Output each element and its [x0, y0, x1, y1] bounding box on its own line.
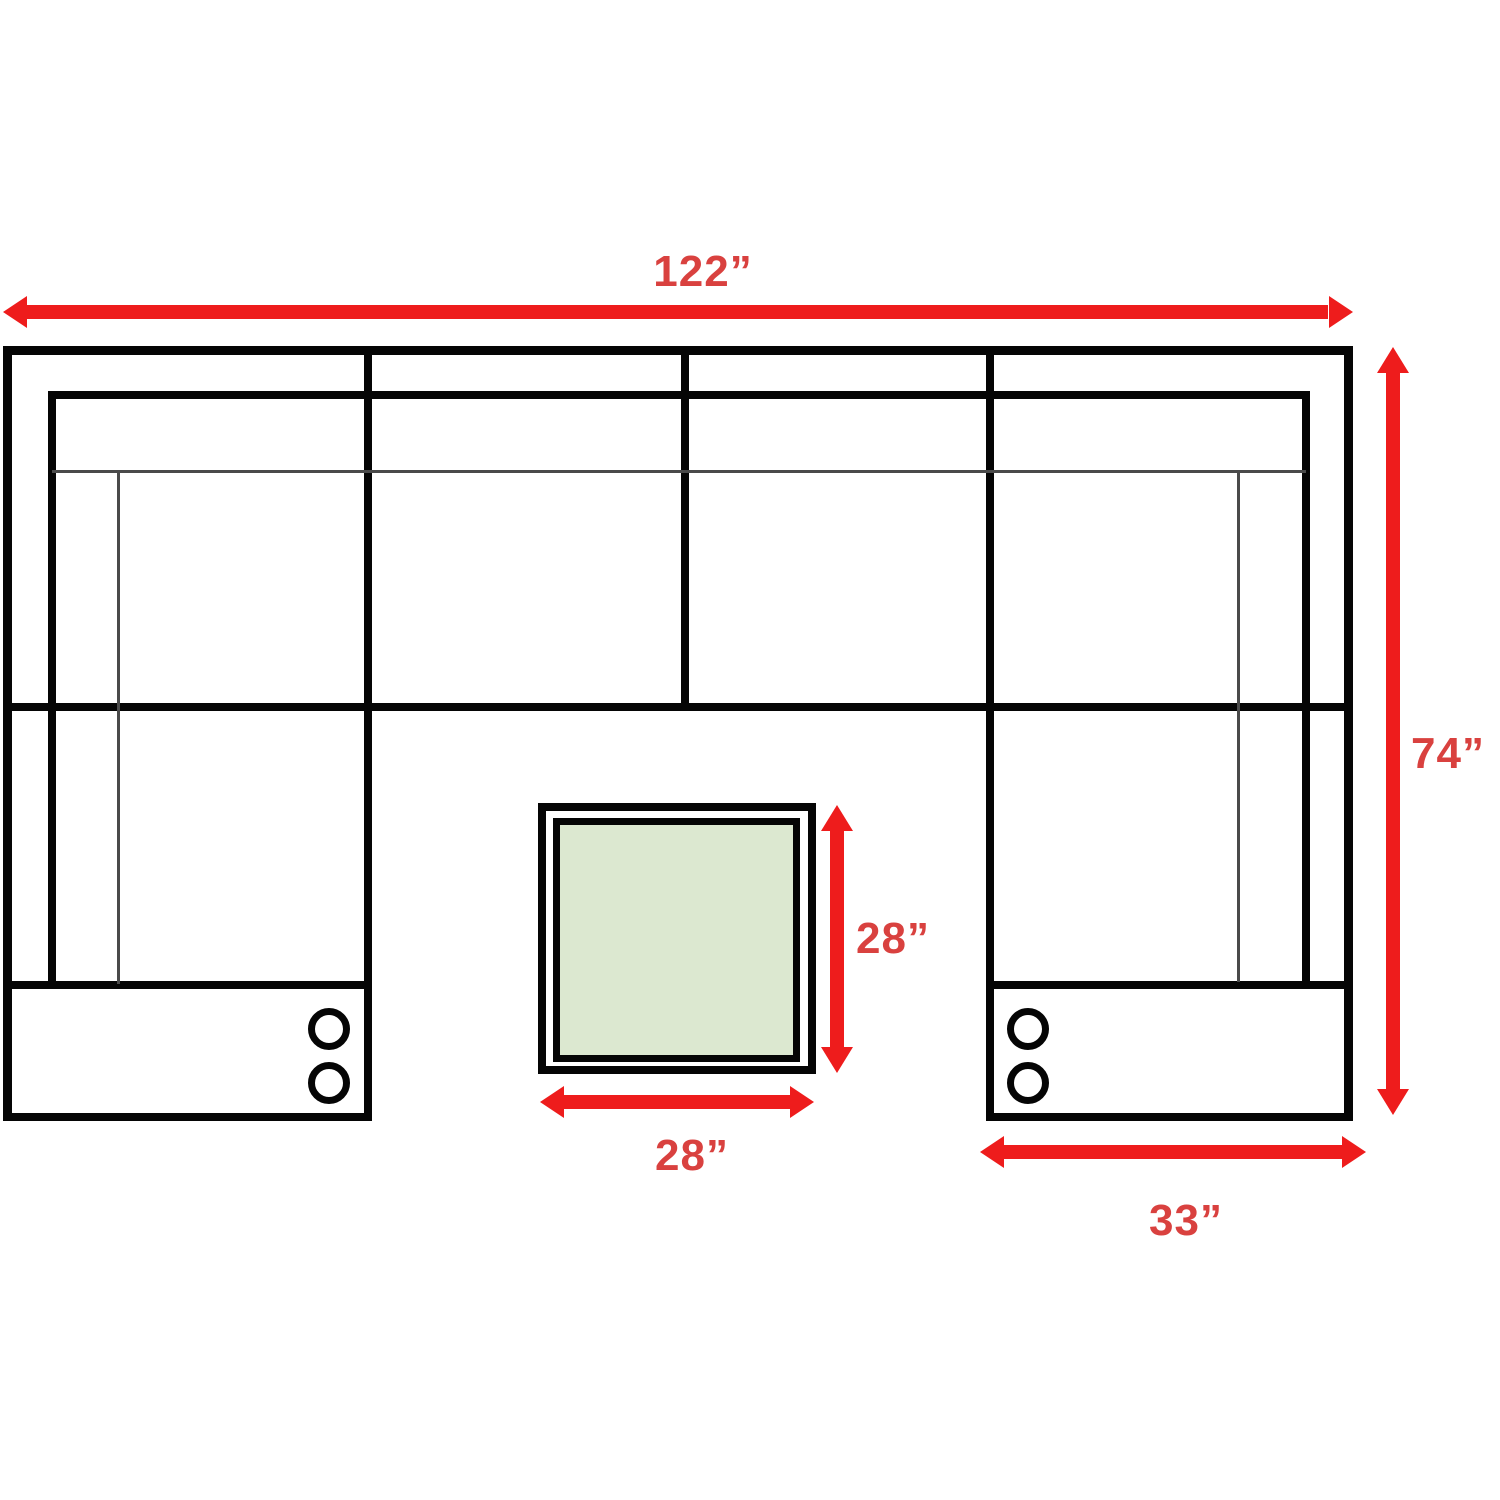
overall-width-arrow [26, 305, 1328, 319]
arrowhead-right-icon [1342, 1136, 1366, 1168]
left-console-top-edge [3, 981, 372, 989]
ottoman-width-label: 28” [582, 1134, 802, 1178]
overall-width-label: 122” [593, 250, 813, 294]
right-arm-cushion-inner-line [1237, 470, 1240, 982]
backrest-inner-right-line [1302, 391, 1310, 984]
seat-front-edge-line [3, 703, 1353, 711]
arrowhead-up-icon [1377, 347, 1409, 373]
overall-depth-arrow [1386, 370, 1400, 1090]
arrowhead-left-icon [540, 1086, 564, 1118]
arrowhead-left-icon [3, 296, 27, 328]
chaise-width-label: 33” [1076, 1199, 1296, 1243]
arrowhead-up-icon [821, 805, 853, 831]
overall-depth-label: 74” [1338, 732, 1500, 776]
arrowhead-right-icon [790, 1086, 814, 1118]
backrest-inner-left-line [48, 391, 56, 984]
left-arm-cushion-inner-line [117, 470, 120, 984]
cup-holder-icon [1007, 1062, 1049, 1104]
ottoman-depth-label: 28” [783, 917, 1003, 961]
seat-divider-right [986, 346, 994, 1121]
arrowhead-left-icon [980, 1136, 1004, 1168]
ottoman-width-arrow [563, 1095, 791, 1109]
cup-holder-icon [1007, 1008, 1049, 1050]
right-console-bottom-edge [986, 1113, 1353, 1121]
sofa-outer-top-edge [3, 346, 1353, 355]
cup-holder-icon [308, 1008, 350, 1050]
chaise-width-arrow [1003, 1145, 1343, 1159]
right-console-top-edge [986, 981, 1353, 989]
seat-divider-left [364, 346, 372, 1121]
ottoman-cushion [553, 818, 800, 1062]
arrowhead-right-icon [1329, 296, 1353, 328]
seat-divider-center [681, 346, 689, 711]
seat-cushion-back-line [52, 470, 1306, 473]
backrest-inner-top-line [48, 391, 1310, 399]
cup-holder-icon [308, 1062, 350, 1104]
arrowhead-down-icon [821, 1047, 853, 1073]
arrowhead-down-icon [1377, 1089, 1409, 1115]
sofa-outer-left-edge [3, 346, 12, 1121]
left-console-bottom-edge [3, 1113, 372, 1121]
sectional-dimension-diagram: 122” 74” 28” 28” 33” [0, 0, 1500, 1500]
